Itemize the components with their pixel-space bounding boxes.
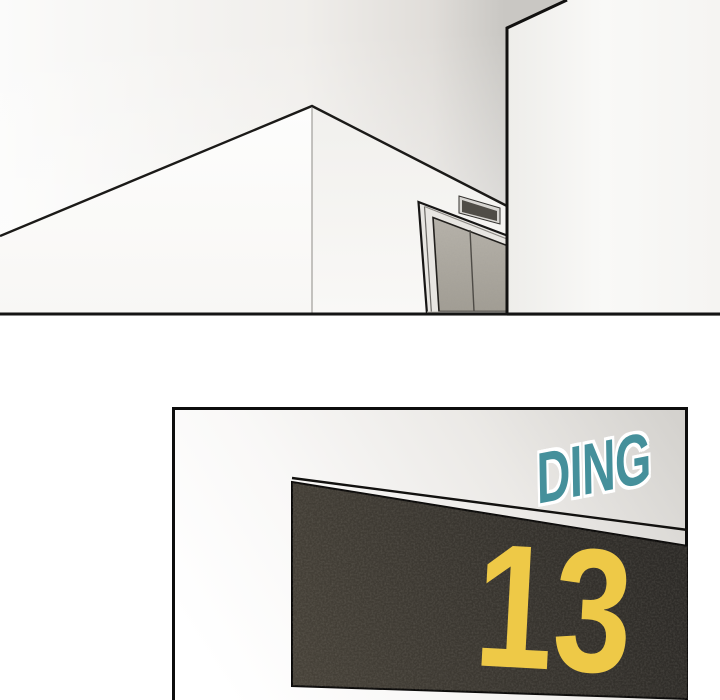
panel-elevator-hallway — [0, 0, 720, 316]
foreground-wall — [507, 0, 720, 314]
floor-number-text: 13 — [472, 533, 619, 684]
panel-floor-display: DING 13 — [172, 407, 688, 700]
hallway-drawing — [0, 0, 720, 316]
